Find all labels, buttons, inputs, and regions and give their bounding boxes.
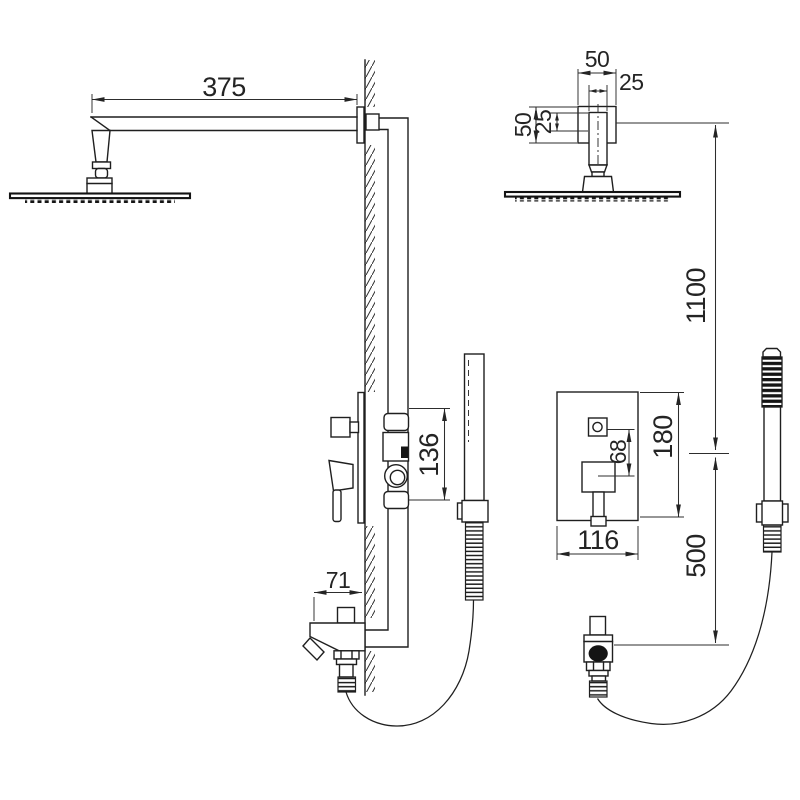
dim-label-pipe-width: 25: [619, 69, 644, 95]
hose-connector: [462, 501, 488, 523]
dim-label-spout-depth: 71: [326, 567, 351, 593]
side-view: 375 136: [10, 60, 488, 726]
spout-outlet-side: [303, 608, 365, 693]
valve-trim-plate-side: [358, 393, 364, 524]
hose-spring-guard: [466, 522, 484, 600]
hose-connector-front: [762, 501, 783, 525]
spout-outlet-front: [584, 617, 613, 698]
dimension-plate-height: 180: [640, 393, 684, 518]
hand-shower-grip: [762, 357, 782, 407]
rain-shower-head-side: [10, 194, 190, 204]
dim-label-arm-length: 375: [202, 72, 246, 102]
wall-section: [365, 60, 375, 695]
diverter-pull: [338, 608, 355, 624]
diverter-button: [589, 418, 608, 436]
mixer-valve-side: [329, 393, 409, 524]
dimension-valve-height: 136: [409, 409, 450, 501]
dimension-flange-width: 50: [578, 46, 616, 105]
dim-label-plate-width: 116: [577, 525, 619, 555]
dim-label-lower-height: 500: [681, 534, 711, 578]
hand-shower-front: [757, 349, 789, 553]
spray-nozzles-front: [515, 197, 670, 202]
diagram-canvas: 375 136: [0, 0, 800, 800]
dimension-arm-length: 375: [92, 72, 357, 113]
hand-shower-side: [458, 354, 489, 600]
dim-label-upper-height: 1100: [681, 268, 711, 324]
front-view: 50 25 50 25: [505, 46, 788, 724]
shower-arm: [87, 107, 379, 195]
spout-mouth: [589, 645, 608, 661]
dimension-upper-height: 1100: [681, 125, 716, 450]
dim-label-plate-height: 180: [648, 415, 678, 459]
spray-nozzles: [25, 198, 175, 203]
dim-label-button-to-handle: 68: [605, 440, 631, 465]
dim-label-pipe-offset: 25: [530, 110, 556, 135]
dim-label-valve-height: 136: [414, 433, 444, 477]
mixer-handle-side: [329, 461, 353, 492]
diverter-knob-side: [331, 418, 350, 438]
shower-system-technical-drawing: 375 136: [0, 0, 800, 800]
dimension-plate-width: 116: [557, 525, 638, 560]
mixer-handle-front: [582, 462, 615, 492]
arm-wall-flange: [357, 107, 364, 143]
dim-label-flange-width: 50: [585, 46, 610, 72]
